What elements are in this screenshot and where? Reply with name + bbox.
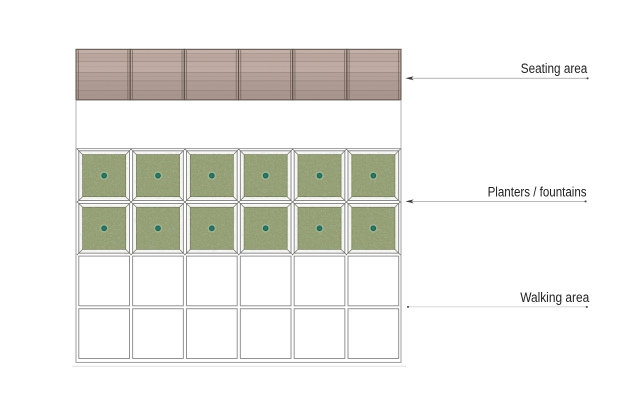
svg-text:Planters / fountains: Planters / fountains	[488, 184, 587, 199]
svg-text:Seating area: Seating area	[521, 61, 588, 76]
svg-text:Walking area: Walking area	[520, 290, 589, 305]
